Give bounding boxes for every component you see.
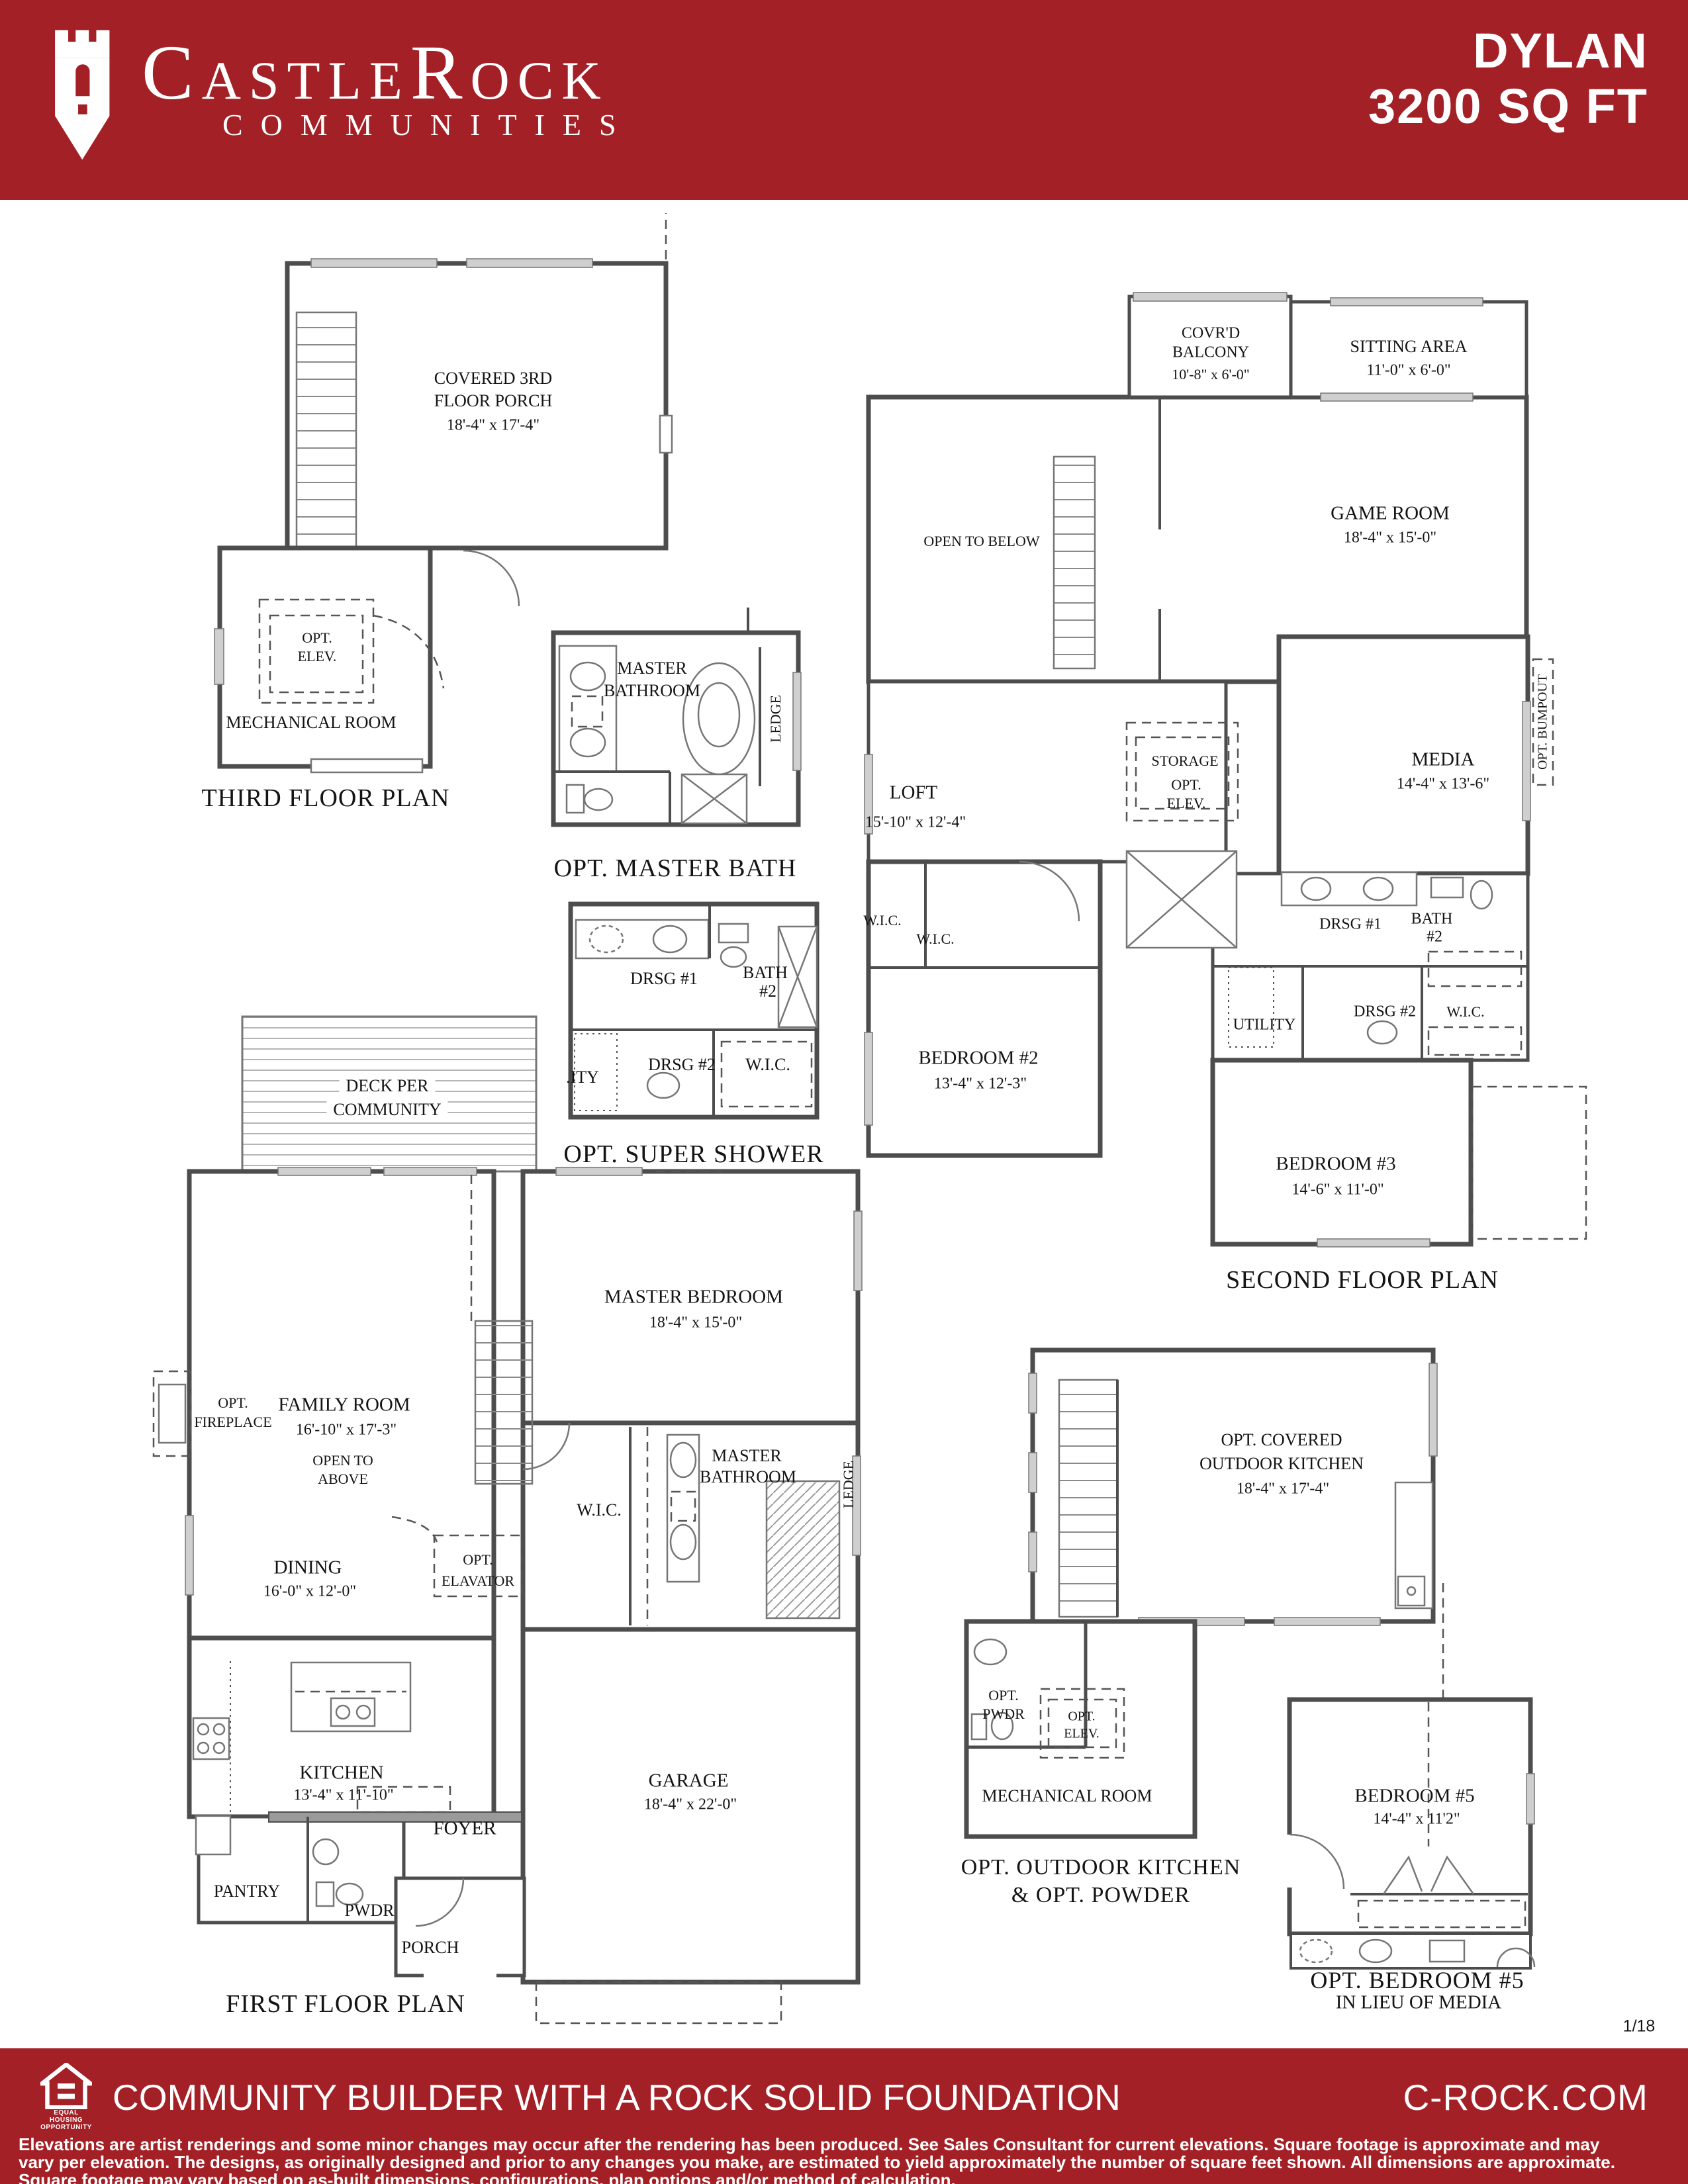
footer-band: EQUAL HOUSING OPPORTUNITY COMMUNITY BUIL… — [0, 2048, 1688, 2184]
equal-housing-icon — [40, 2063, 92, 2109]
equal-housing-caption-line1: EQUAL HOUSING — [38, 2109, 94, 2124]
room-label-bedroom5: BEDROOM #5 — [1354, 1786, 1474, 1807]
label-opt-pwdr-line2: PWDR — [982, 1706, 1025, 1723]
label-open-to-above-line1: OPEN TO — [312, 1452, 373, 1469]
disclaimer-line2: vary per elevation. The designs, as orig… — [19, 2154, 1669, 2171]
room-label-covrd-balcony-line2: BALCONY — [1172, 344, 1249, 362]
room-dims-loft: 15'-10" x 12'-4" — [865, 814, 966, 832]
ss-label-utility-partial: .ITY — [566, 1068, 599, 1087]
plan-title-first-floor: FIRST FLOOR PLAN — [226, 1989, 465, 2019]
plan-title-opt-bedroom5-line1: OPT. BEDROOM #5 — [1310, 1966, 1524, 1994]
room-label-drsg2: DRSG #2 — [1354, 1003, 1416, 1021]
room-label-dining: DINING — [273, 1557, 342, 1579]
label-storage-elev: ELEV. — [1167, 795, 1206, 812]
label-opt-fireplace-line2: FIREPLACE — [194, 1414, 271, 1431]
room-label-master-bathroom-ff-line2: BATHROOM — [700, 1467, 796, 1487]
label-opt-elev-ook-line1: OPT. — [1068, 1709, 1095, 1725]
plan-title-opt-outdoor-kitchen-line1: OPT. OUTDOOR KITCHEN — [961, 1855, 1241, 1880]
label-opt-fireplace-line1: OPT. — [218, 1394, 248, 1412]
footer-headline: COMMUNITY BUILDER WITH A ROCK SOLID FOUN… — [113, 2076, 1121, 2118]
room-dims-bedroom5: 14'-4" x 11'2" — [1373, 1811, 1460, 1829]
ss-label-wic: W.I.C. — [745, 1055, 790, 1075]
room-label-mechanical-room: MECHANICAL ROOM — [226, 713, 397, 733]
room-label-bedroom3: BEDROOM #3 — [1276, 1154, 1395, 1175]
label-storage-opt: OPT. — [1171, 776, 1201, 794]
ss-label-drsg2: DRSG #2 — [648, 1055, 716, 1075]
room-dims-sitting-area: 11'-0" x 6'-0" — [1366, 362, 1450, 380]
room-dims-family-room: 16'-10" x 17'-3" — [296, 1422, 397, 1439]
plan-title-second-floor: SECOND FLOOR PLAN — [1226, 1265, 1499, 1295]
room-label-kitchen: KITCHEN — [299, 1762, 383, 1784]
room-label-pantry: PANTRY — [214, 1882, 280, 1901]
label-opt-elevator-line2: ELAVATOR — [442, 1572, 514, 1590]
second-floor-drawing — [865, 293, 1586, 1247]
label-deck-line2: COMMUNITY — [326, 1099, 447, 1120]
room-label-loft: LOFT — [890, 782, 938, 804]
room-label-family-room: FAMILY ROOM — [278, 1394, 410, 1416]
label-opt-elevator-line1: OPT. — [463, 1551, 492, 1569]
equal-housing-logo: EQUAL HOUSING OPPORTUNITY — [38, 2063, 94, 2131]
room-label-media: MEDIA — [1411, 749, 1474, 771]
room-label-wic-b: W.I.C. — [916, 931, 954, 948]
label-opt-bumpout: OPT. BUMPOUT — [1536, 674, 1551, 770]
room-dims-garage: 18'-4" x 22'-0" — [644, 1796, 737, 1814]
room-label-wic-first-floor: W.I.C. — [577, 1500, 622, 1520]
plan-title-opt-outdoor-kitchen-line2: & OPT. POWDER — [1011, 1883, 1190, 1908]
flyer-page: CASTLEROCK COMMUNITIES DYLAN 3200 SQ FT — [0, 0, 1688, 2184]
label-open-to-above-line2: ABOVE — [318, 1471, 368, 1488]
ss-label-drsg1: DRSG #1 — [630, 969, 698, 989]
room-label-bath2-line1: BATH — [1411, 911, 1453, 929]
room-label-garage: GARAGE — [649, 1770, 729, 1792]
plan-title-third-floor: THIRD FLOOR PLAN — [202, 784, 450, 813]
room-label-drsg1: DRSG #1 — [1319, 916, 1382, 934]
label-opt-elev-ook-line2: ELEV. — [1064, 1727, 1100, 1742]
room-label-mechanical-room-ook: MECHANICAL ROOM — [982, 1786, 1152, 1806]
opt-super-shower-drawing — [571, 904, 817, 1117]
room-label-utility: UTILITY — [1233, 1017, 1296, 1034]
label-opt-elev-line2: ELEV. — [298, 648, 337, 665]
label-opt-elev-line1: OPT. — [302, 629, 332, 647]
room-label-covered-porch-line2: FLOOR PORCH — [434, 391, 552, 411]
room-label-wic-a: W.I.C. — [863, 912, 901, 929]
label-opt-pwdr-line1: OPT. — [988, 1687, 1018, 1704]
plan-title-opt-master-bath: OPT. MASTER BATH — [554, 854, 797, 883]
room-label-sitting-area: SITTING AREA — [1350, 337, 1468, 357]
disclaimer-line3: Square footage may vary based on as-buil… — [19, 2171, 1669, 2184]
room-dims-bedroom3: 14'-6" x 11'-0" — [1291, 1181, 1383, 1199]
plan-title-opt-bedroom5-line2: IN LIEU OF MEDIA — [1336, 1992, 1502, 2014]
label-ledge-first-floor: LEDGE — [840, 1461, 857, 1508]
room-label-foyer: FOYER — [433, 1818, 496, 1840]
room-label-game-room: GAME ROOM — [1331, 503, 1450, 525]
ss-label-bath2-line1: BATH — [743, 963, 788, 983]
room-label-porch: PORCH — [402, 1938, 459, 1958]
room-dims-media: 14'-4" x 13'-6" — [1397, 776, 1489, 794]
label-open-to-below: OPEN TO BELOW — [923, 533, 1039, 550]
room-label-outdoor-kitchen-line2: OUTDOOR KITCHEN — [1199, 1454, 1364, 1474]
room-label-pwdr: PWDR — [344, 1901, 394, 1921]
room-dims-kitchen: 13'-4" x 11'-10" — [293, 1787, 393, 1805]
room-label-covered-porch-line1: COVERED 3RD — [434, 369, 552, 388]
room-label-master-bathroom-ff-line1: MASTER — [712, 1446, 781, 1466]
floor-plan-drawing — [0, 0, 1688, 2184]
opt-master-bath-drawing — [553, 608, 801, 825]
label-ledge-opt-master-bath: LEDGE — [767, 695, 784, 743]
footer-disclaimer: Elevations are artist renderings and som… — [19, 2136, 1669, 2184]
label-storage: STORAGE — [1151, 752, 1218, 770]
room-label-outdoor-kitchen-line1: OPT. COVERED — [1221, 1430, 1342, 1450]
label-deck-line1: DECK PER — [340, 1075, 436, 1097]
plan-title-opt-super-shower: OPT. SUPER SHOWER — [563, 1140, 823, 1169]
opt-bedroom5-drawing — [1286, 1700, 1534, 1968]
room-dims-covrd-balcony: 10'-8" x 6'-0" — [1172, 366, 1250, 383]
footer-website-link[interactable]: C-ROCK.COM — [1403, 2076, 1648, 2118]
room-dims-bedroom2: 13'-4" x 12'-3" — [934, 1075, 1027, 1093]
page-number: 1/18 — [1623, 2017, 1656, 2036]
room-label-master-bathroom-line1: MASTER — [617, 659, 686, 678]
room-dims-covered-porch: 18'-4" x 17'-4" — [447, 417, 539, 435]
room-label-master-bedroom: MASTER BEDROOM — [604, 1287, 783, 1308]
room-dims-outdoor-kitchen: 18'-4" x 17'-4" — [1237, 1480, 1329, 1498]
disclaimer-line1: Elevations are artist renderings and som… — [19, 2136, 1669, 2154]
room-label-bedroom2: BEDROOM #2 — [918, 1048, 1038, 1069]
room-dims-dining: 16'-0" x 12'-0" — [263, 1583, 356, 1601]
room-dims-master-bedroom: 18'-4" x 15'-0" — [649, 1314, 742, 1332]
ss-label-bath2-line2: #2 — [759, 981, 776, 1001]
equal-housing-caption-line2: OPPORTUNITY — [38, 2124, 94, 2131]
room-label-master-bathroom-line2: BATHROOM — [604, 681, 700, 701]
room-label-covrd-balcony-line1: COVR'D — [1182, 325, 1240, 343]
room-label-bath2-line2: #2 — [1427, 929, 1442, 946]
room-dims-game-room: 18'-4" x 15'-0" — [1344, 529, 1436, 547]
room-label-wic-c: W.I.C. — [1446, 1003, 1484, 1021]
